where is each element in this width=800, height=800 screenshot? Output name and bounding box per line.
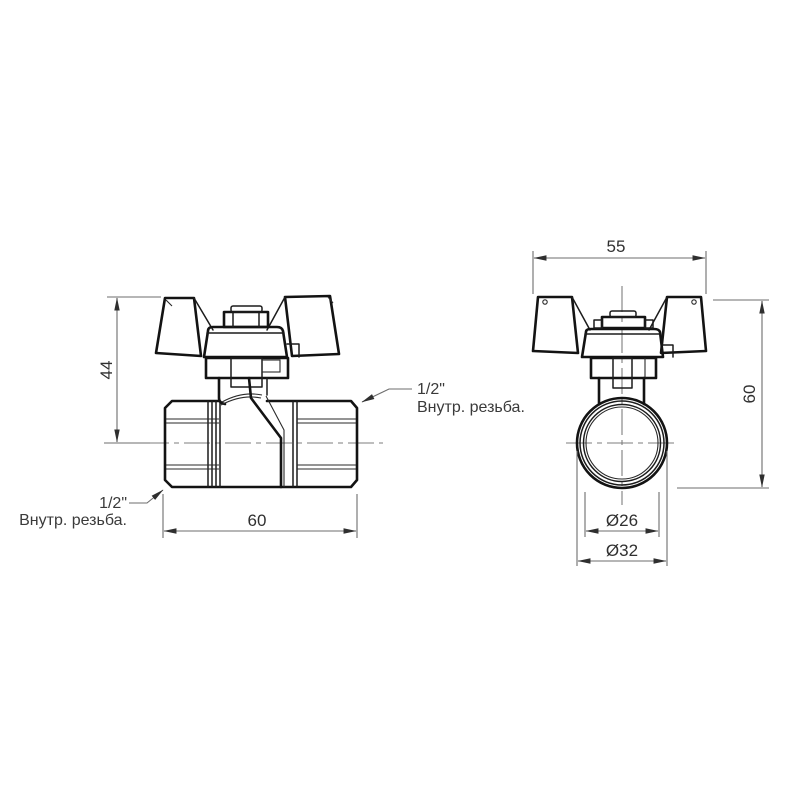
- stem-nut-body: [224, 312, 268, 327]
- dim-60-text: 60: [248, 511, 267, 530]
- front-butterfly-handle: [533, 297, 706, 357]
- body-outline: [165, 401, 357, 487]
- handle-hub: [204, 327, 287, 357]
- dim-55-text: 55: [607, 237, 626, 256]
- stem-block: [231, 358, 262, 387]
- thread-label-bottom-size: 1/2": [99, 495, 127, 512]
- thread-label-top-type: Внутр. резьба.: [417, 399, 525, 416]
- front-nut-face: [602, 317, 645, 328]
- front-stem-nut: [594, 311, 653, 328]
- valve-technical-drawing: 44 60 1/2" Внутр. резьба. 1/2" Внутр. ре…: [0, 0, 800, 800]
- thread-leader-top-line: [362, 389, 412, 402]
- neck-left-edge: [219, 378, 225, 404]
- dim-60r-text: 60: [740, 385, 759, 404]
- handle-left-wing: [156, 298, 201, 356]
- front-left-wing-dimple: [543, 300, 547, 304]
- handle-right-wing: [285, 296, 339, 356]
- thread-label-top-size: 1/2": [417, 381, 445, 398]
- body-neck: [219, 378, 284, 487]
- front-dimensions: 55 60 Ø26 Ø32: [533, 237, 769, 566]
- dim-26-text: Ø26: [606, 511, 638, 530]
- stem-step: [262, 360, 280, 372]
- gland-flange: [206, 358, 288, 378]
- front-left-wing: [533, 297, 578, 353]
- stem-nut: [224, 306, 268, 327]
- side-valve-body: [165, 378, 357, 487]
- side-butterfly-handle: [156, 296, 339, 357]
- dim-44-text: 44: [97, 361, 116, 380]
- front-gland-flange: [591, 358, 656, 378]
- dim-32-text: Ø32: [606, 541, 638, 560]
- handle-left-wing-chamfer: [166, 300, 172, 306]
- thread-leader-top: 1/2" Внутр. резьба.: [362, 381, 525, 416]
- side-view: 44 60 1/2" Внутр. резьба. 1/2" Внутр. ре…: [19, 296, 525, 538]
- hex-flat-lines: [166, 419, 356, 469]
- thread-leader-bottom-line: [129, 490, 163, 503]
- drawing-canvas: 44 60 1/2" Внутр. резьба. 1/2" Внутр. ре…: [0, 0, 800, 800]
- front-right-wing-dimple: [692, 300, 696, 304]
- handle-right-wing-inner-edge: [267, 297, 285, 330]
- front-hub-step: [663, 345, 673, 357]
- thread-label-bottom-type: Внутр. резьба.: [19, 512, 127, 529]
- thread-leader-bottom: 1/2" Внутр. резьба.: [19, 490, 163, 529]
- front-view: 55 60 Ø26 Ø32: [533, 237, 769, 566]
